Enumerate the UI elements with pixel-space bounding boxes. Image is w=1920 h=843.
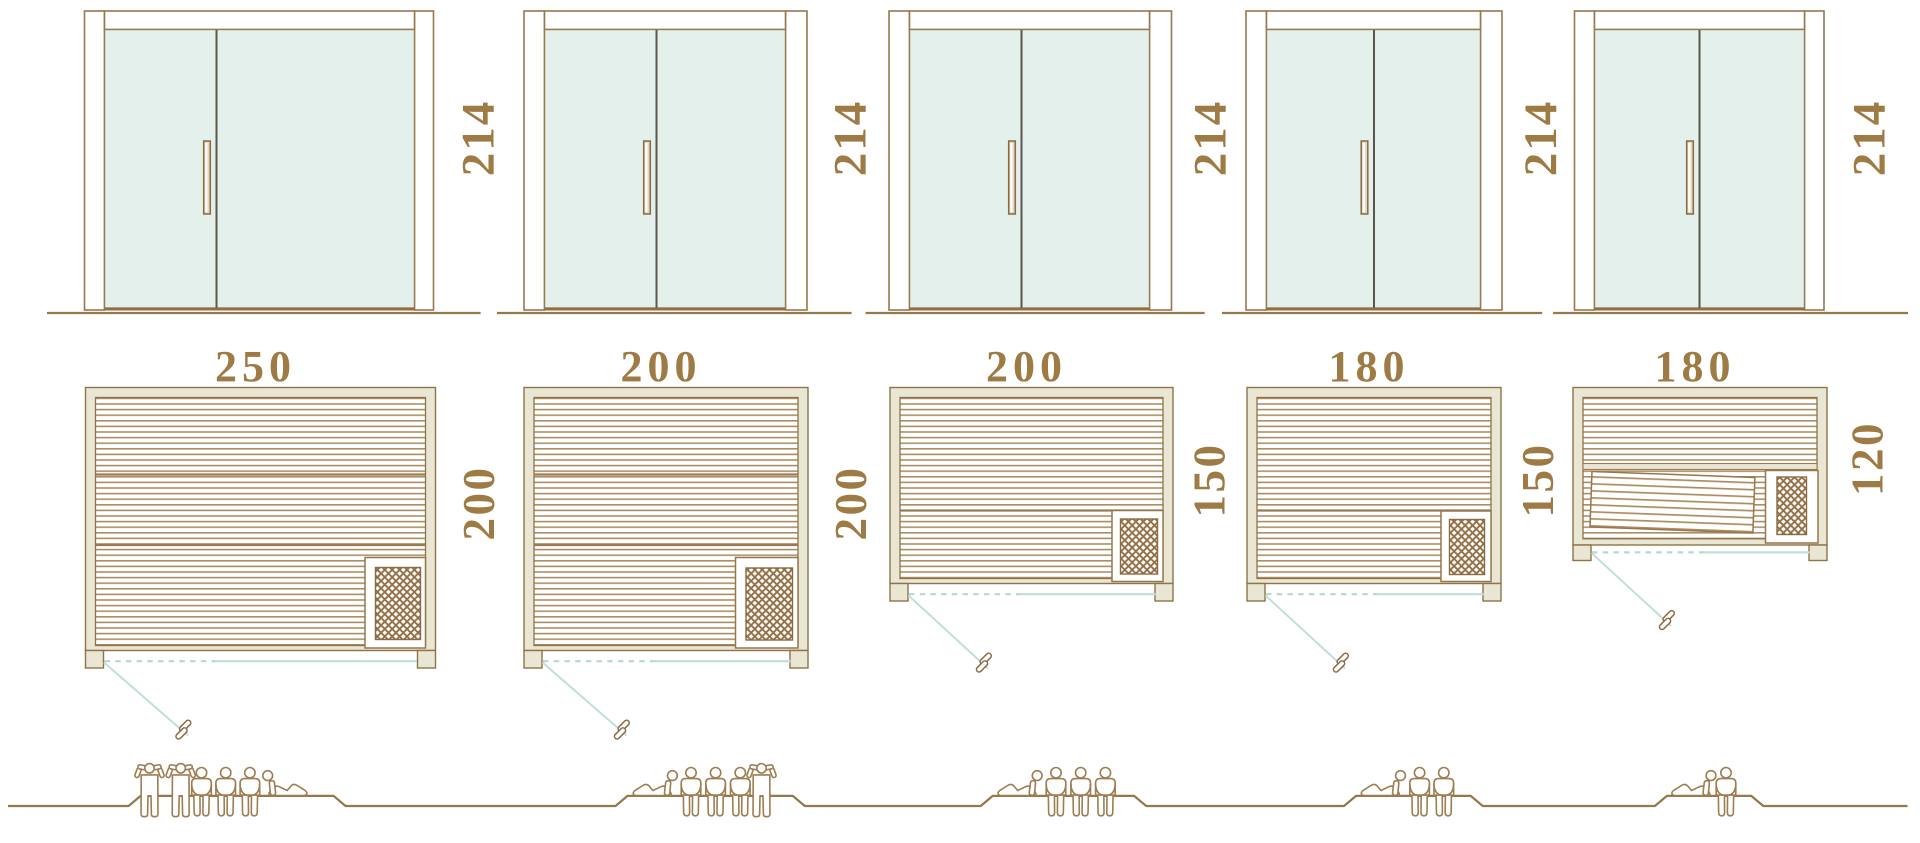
svg-text:250: 250 (215, 342, 296, 391)
svg-text:200: 200 (986, 342, 1067, 391)
svg-text:180: 180 (1329, 342, 1410, 391)
svg-text:120: 120 (1843, 421, 1893, 496)
svg-text:180: 180 (1655, 342, 1736, 391)
svg-text:214: 214 (453, 100, 505, 177)
svg-text:150: 150 (1513, 443, 1563, 518)
svg-text:214: 214 (1185, 100, 1237, 177)
svg-text:200: 200 (621, 342, 702, 391)
svg-text:200: 200 (826, 466, 876, 541)
svg-text:214: 214 (825, 100, 877, 177)
svg-text:200: 200 (454, 466, 504, 541)
svg-text:150: 150 (1185, 443, 1235, 518)
svg-text:214: 214 (1844, 100, 1896, 177)
svg-text:214: 214 (1515, 100, 1567, 177)
